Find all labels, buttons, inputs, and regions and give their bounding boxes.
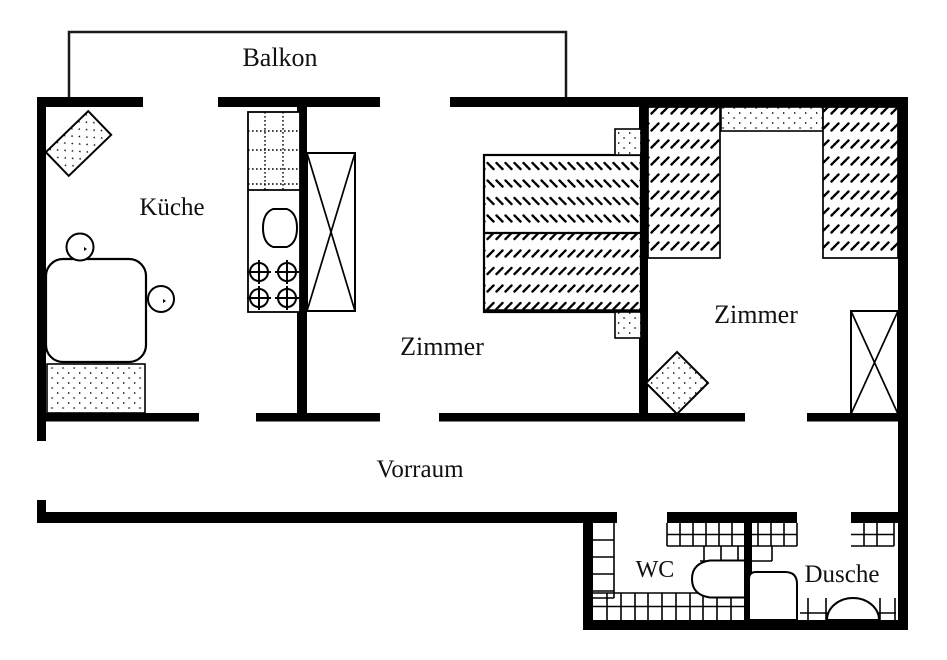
svg-text:Vorraum: Vorraum <box>376 456 464 483</box>
svg-text:Balkon: Balkon <box>242 43 317 72</box>
svg-text:Dusche: Dusche <box>805 561 880 588</box>
svg-text:Küche: Küche <box>139 194 204 221</box>
svg-text:Zimmer: Zimmer <box>714 300 798 329</box>
svg-text:Zimmer: Zimmer <box>400 332 484 361</box>
svg-text:WC: WC <box>636 557 675 583</box>
